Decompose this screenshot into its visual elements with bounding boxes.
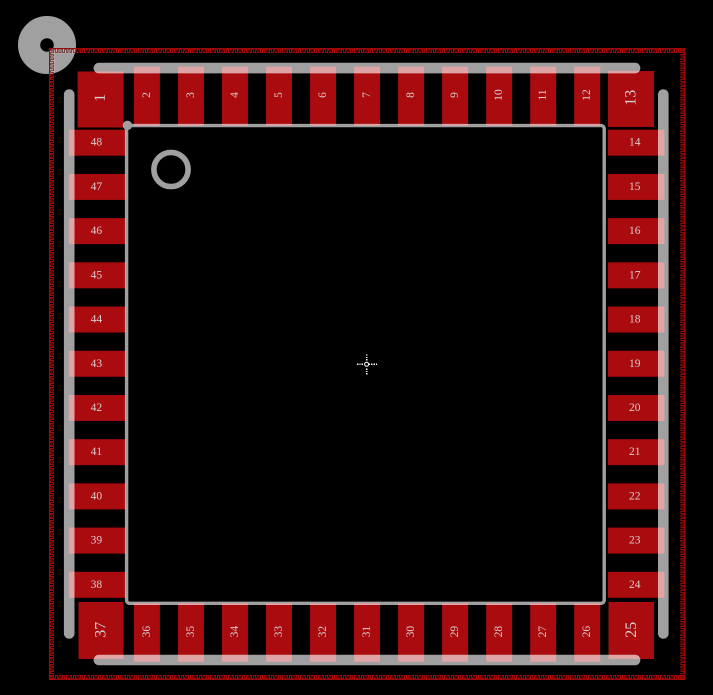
svg-text:31: 31 [361, 626, 373, 638]
svg-text:6: 6 [317, 92, 329, 98]
svg-text:29: 29 [449, 626, 461, 638]
svg-text:26: 26 [581, 626, 593, 638]
svg-text:10: 10 [493, 89, 505, 101]
svg-text:36: 36 [141, 626, 153, 638]
svg-text:7: 7 [361, 92, 373, 98]
svg-text:47: 47 [91, 181, 103, 193]
svg-text:5: 5 [273, 92, 285, 98]
svg-text:2: 2 [141, 92, 153, 98]
svg-text:35: 35 [185, 626, 197, 638]
svg-text:22: 22 [629, 490, 641, 502]
svg-text:13: 13 [623, 90, 640, 106]
svg-text:30: 30 [405, 626, 417, 638]
svg-text:38: 38 [91, 579, 103, 591]
svg-text:41: 41 [91, 446, 103, 458]
svg-text:18: 18 [629, 314, 641, 326]
svg-text:32: 32 [317, 626, 329, 638]
svg-text:28: 28 [493, 626, 505, 638]
svg-text:3: 3 [185, 92, 197, 98]
svg-text:48: 48 [91, 137, 103, 149]
svg-text:43: 43 [91, 358, 103, 370]
svg-text:37: 37 [93, 622, 110, 638]
svg-text:14: 14 [629, 137, 641, 149]
svg-text:11: 11 [537, 89, 549, 100]
svg-text:25: 25 [623, 622, 640, 638]
svg-text:1: 1 [92, 94, 109, 102]
svg-text:12: 12 [581, 89, 593, 101]
svg-text:46: 46 [91, 225, 103, 237]
svg-text:4: 4 [229, 92, 241, 98]
svg-text:9: 9 [449, 92, 461, 98]
svg-text:34: 34 [229, 626, 241, 638]
svg-text:40: 40 [91, 490, 103, 502]
svg-text:21: 21 [629, 446, 641, 458]
svg-text:23: 23 [629, 535, 641, 547]
svg-text:27: 27 [537, 626, 549, 638]
svg-text:19: 19 [629, 358, 641, 370]
svg-text:17: 17 [629, 269, 641, 281]
svg-text:45: 45 [91, 269, 103, 281]
svg-text:8: 8 [405, 92, 417, 98]
svg-text:24: 24 [629, 579, 641, 591]
svg-text:15: 15 [629, 181, 641, 193]
svg-text:33: 33 [273, 626, 285, 638]
svg-text:42: 42 [91, 402, 103, 414]
svg-text:39: 39 [91, 535, 103, 547]
svg-text:16: 16 [629, 225, 641, 237]
svg-text:20: 20 [629, 402, 641, 414]
svg-text:44: 44 [91, 314, 103, 326]
